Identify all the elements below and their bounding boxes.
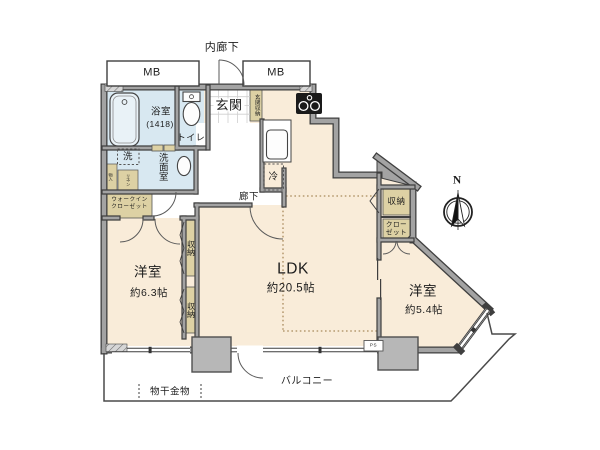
stove-icon [296,93,322,114]
label-storage-right: 収納 [387,197,405,206]
toilet-icon [183,92,200,126]
label-bedroom2-size: 約5.4帖 [405,305,443,316]
label-bedroom1-size: 約6.3帖 [130,288,168,299]
label-toilet: トイレ [177,134,206,143]
balcony-door-arc [238,353,263,378]
balcony-door-opening [237,346,263,355]
label-closet-line1: クロー [386,223,407,230]
pillar [192,337,231,372]
label-drying-fixture: 物干金物 [150,387,190,397]
label-closet-line2: ゼット [386,231,407,238]
label-storage-mid-lower: 収納 [187,302,195,318]
label-small-storage-right: リネン [126,174,130,187]
label-hallway: 廊下 [239,192,259,202]
label-mb-right: MB [267,68,285,79]
label-entrance-storage: 玄関収納 [253,94,259,116]
pillar [378,337,418,370]
label-pipe-space: PS [370,343,377,348]
compass-icon [444,190,472,230]
kitchen-sink-icon [267,130,288,159]
label-mb-left: MB [143,68,161,79]
label-ldk-size: 約20.5帖 [267,283,315,295]
label-fridge: 冷 [268,172,278,182]
label-small-storage-left: 物入 [108,173,112,181]
label-bathroom: 浴室 [151,107,171,117]
label-storage-mid-upper: 収納 [187,240,195,256]
label-washroom: 洗面室 [157,153,167,182]
sink-icon [177,156,190,175]
floorplan: 内廊下 MB MB 玄関 玄関収納 浴室 (1418) トイレ 洗 洗面室 物入… [0,0,600,450]
label-wic-line2: クローゼット [111,205,148,211]
bathtub-icon [110,93,139,146]
label-bathroom-size: (1418) [146,120,174,129]
label-washer: 洗 [123,152,133,162]
entrance-door-arc [219,60,244,85]
label-north: N [453,175,461,187]
label-wic-line1: ウォークイン [111,198,148,204]
label-balcony: バルコニー [281,377,333,387]
label-bedroom1: 洋室 [134,265,162,279]
label-inner-corridor: 内廊下 [205,43,240,54]
label-bedroom2: 洋室 [409,284,437,298]
label-entrance: 玄関 [213,99,244,112]
label-ldk: LDK [277,261,309,277]
